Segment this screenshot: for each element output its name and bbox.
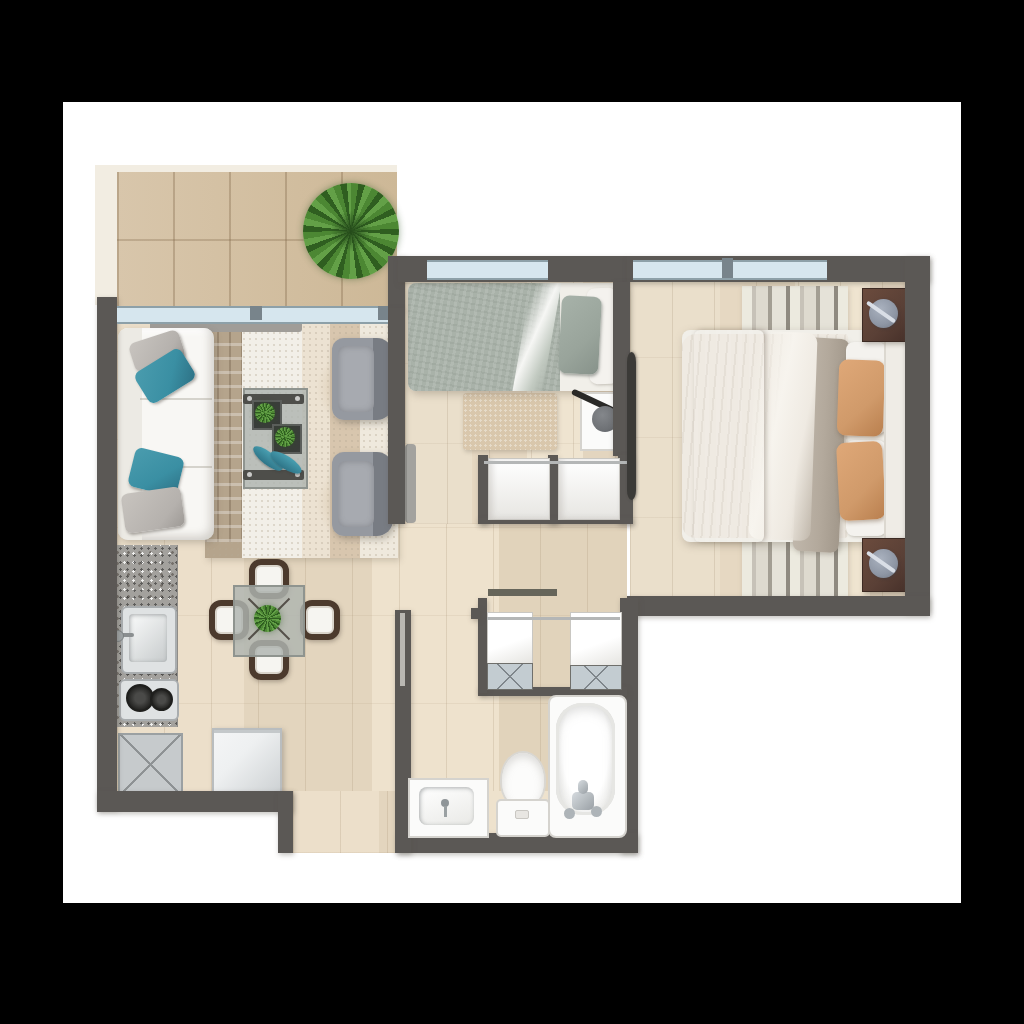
- master-pillow-orange: [836, 441, 886, 521]
- wall-master-south: [627, 596, 930, 616]
- wall-west: [97, 297, 117, 809]
- bedroom2-closet: [558, 458, 620, 520]
- master-pillow-orange: [837, 359, 886, 437]
- vanity-tap-stem: [444, 806, 447, 817]
- kitchen-appliance-cabinet: [118, 733, 183, 796]
- toilet-flush-button: [515, 810, 529, 819]
- dining-centerpiece-plant: [254, 605, 281, 632]
- hall-closet-x-front: [487, 663, 533, 690]
- wall-door-stub: [471, 608, 480, 619]
- tub-faucet-handle: [591, 806, 602, 817]
- bathroom-door-leaf: [400, 613, 405, 686]
- master-throw-brown: [694, 330, 764, 542]
- closet-rail: [484, 461, 630, 464]
- armchair: [332, 452, 393, 536]
- armchair: [332, 338, 393, 420]
- tub-spout: [578, 780, 588, 794]
- wall-living-east: [388, 308, 405, 524]
- hall-closet-rail: [487, 617, 620, 620]
- wall-master-east: [905, 256, 930, 612]
- bedroom2-window: [427, 260, 548, 280]
- window-mullion: [250, 306, 262, 320]
- window-mullion: [722, 258, 733, 278]
- bedroom2-closet: [488, 458, 550, 520]
- wall-vestibule-west: [278, 791, 293, 853]
- master-headboard: [884, 330, 907, 542]
- closet-frame: [478, 455, 488, 524]
- balcony-border-left: [95, 165, 117, 305]
- sofa-pillow-gray: [121, 486, 186, 534]
- window-mullion: [378, 306, 388, 320]
- master-door-leaf: [627, 352, 636, 500]
- hall-closet: [487, 612, 533, 667]
- wall-kitchen-south: [97, 791, 293, 812]
- cooktop-burner: [150, 688, 173, 711]
- tub-faucet: [572, 792, 594, 810]
- refrigerator: [212, 728, 282, 796]
- dining-chair: [300, 600, 340, 640]
- floor-plan-page: [0, 0, 1024, 1024]
- bedroom2-rug: [463, 393, 557, 450]
- hall-closet-x-front: [570, 665, 622, 690]
- hall-closet: [570, 612, 622, 669]
- balcony-plant-core: [330, 210, 372, 252]
- kitchen-sink-basin: [129, 614, 167, 662]
- bedroom2-door-leaf: [405, 444, 416, 523]
- tub-faucet-handle: [564, 808, 575, 819]
- hall-closet-shelf: [488, 589, 557, 596]
- bedroom2-pillow-sage: [558, 295, 602, 375]
- coffee-table-planter: [272, 424, 302, 454]
